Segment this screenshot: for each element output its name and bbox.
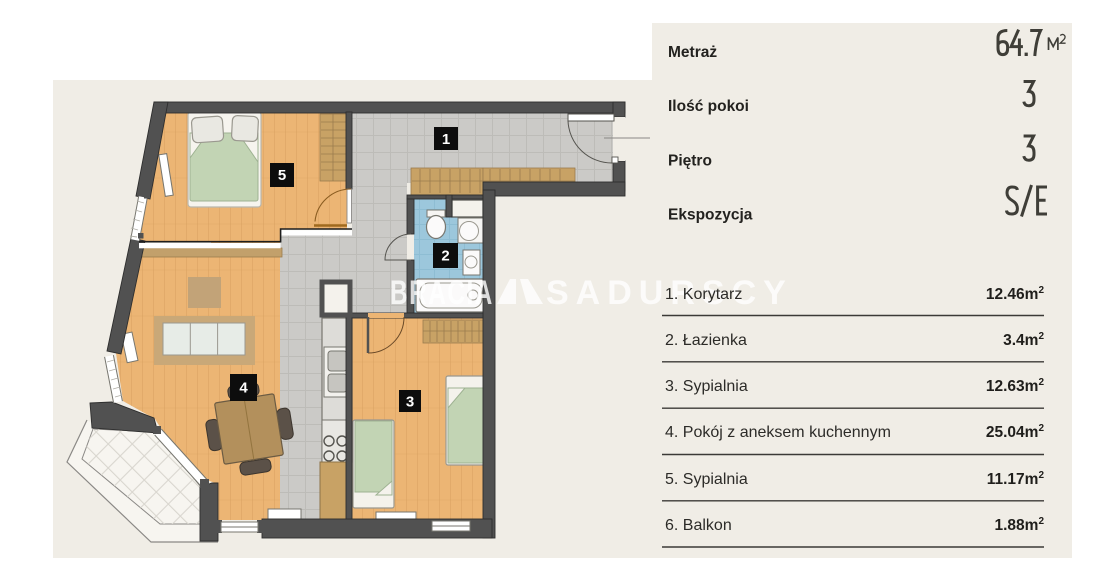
- svg-text:Metraż: Metraż: [668, 44, 717, 61]
- svg-text:1: 1: [442, 131, 450, 148]
- svg-text:6. Balkon: 6. Balkon: [665, 517, 732, 534]
- svg-text:4. Pokój z aneksem kuchennym: 4. Pokój z aneksem kuchennym: [665, 424, 891, 441]
- svg-text:25.04m2: 25.04m2: [986, 423, 1045, 441]
- svg-text:5: 5: [278, 167, 286, 184]
- svg-text:5. Sypialnia: 5. Sypialnia: [665, 471, 748, 488]
- svg-text:2: 2: [441, 248, 449, 265]
- svg-text:12.46m2: 12.46m2: [986, 285, 1045, 303]
- svg-text:2. Łazienka: 2. Łazienka: [665, 332, 747, 349]
- svg-text:1. Korytarz: 1. Korytarz: [665, 286, 742, 303]
- svg-text:3.4m2: 3.4m2: [1003, 331, 1044, 349]
- svg-text:3. Sypialnia: 3. Sypialnia: [665, 378, 748, 395]
- svg-text:3: 3: [406, 394, 414, 411]
- svg-text:4: 4: [239, 380, 248, 397]
- svg-text:11.17m2: 11.17m2: [987, 470, 1045, 488]
- svg-text:Ekspozycja: Ekspozycja: [668, 207, 753, 224]
- svg-text:BRACIA: BRACIA: [390, 274, 494, 312]
- svg-text:Ilość pokoi: Ilość pokoi: [668, 98, 749, 115]
- svg-text:1.88m2: 1.88m2: [994, 516, 1044, 534]
- svg-text:Piętro: Piętro: [668, 153, 712, 170]
- svg-text:12.63m2: 12.63m2: [986, 377, 1045, 395]
